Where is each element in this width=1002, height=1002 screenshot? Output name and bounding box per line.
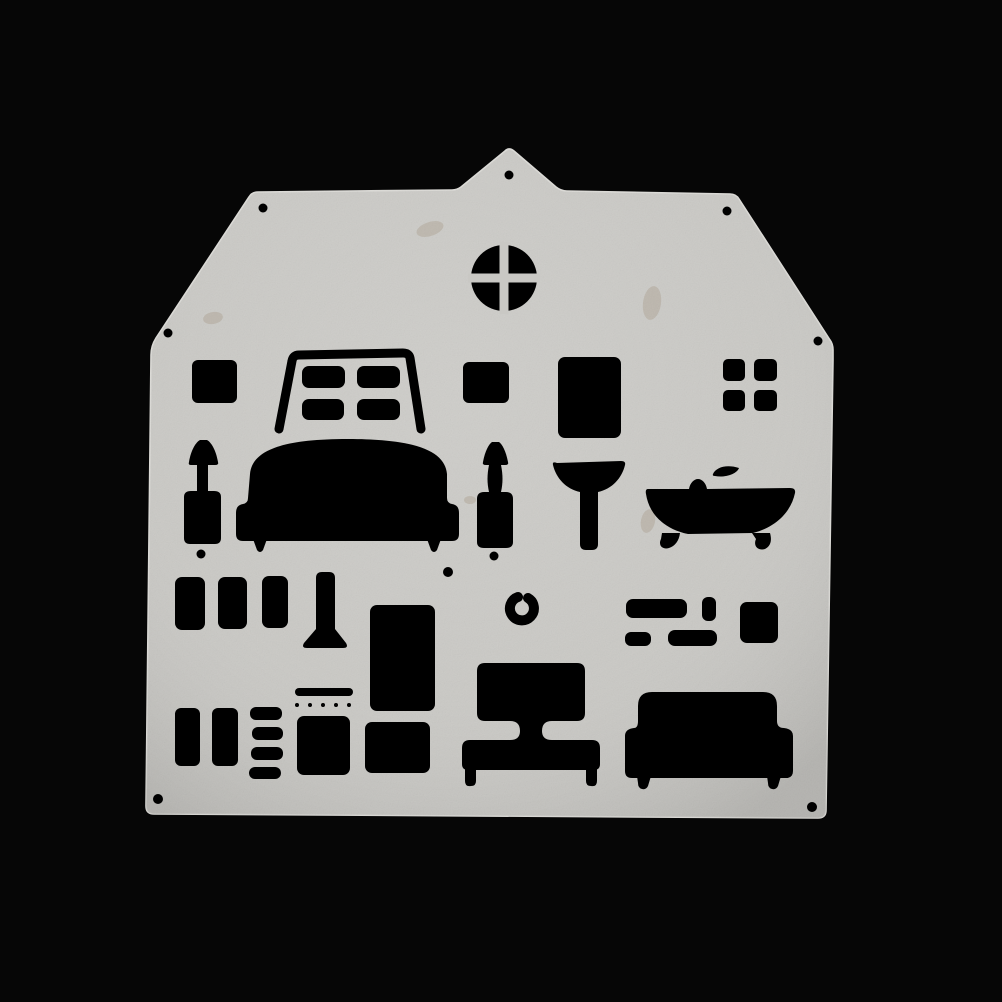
die-photo-canvas	[0, 0, 1002, 1002]
pilot-hole	[505, 171, 514, 180]
vent-slot-cutout	[295, 688, 353, 696]
sofa-bed-cutout	[625, 692, 793, 789]
small-window-cutout	[192, 360, 237, 403]
wardrobe-door-cutout	[370, 605, 435, 711]
dresser-panel-cutout	[297, 716, 350, 775]
cabinet-panel-cutout	[365, 722, 430, 773]
drawer-blank-cutout	[175, 577, 205, 630]
bed-leg-cutout	[586, 768, 597, 786]
pilot-hole	[814, 337, 823, 346]
drawer-blank-cutout	[175, 708, 200, 766]
pilot-hole	[807, 802, 817, 812]
drawer-blank-cutout	[212, 708, 238, 766]
pilot-hole	[723, 207, 732, 216]
attic-cross-vertical-bar	[500, 242, 509, 314]
pilot-hole	[259, 204, 268, 213]
pilot-hole	[164, 329, 173, 338]
small-window-cutout	[463, 362, 509, 403]
door-panel-cutout	[558, 357, 621, 438]
product-photo	[0, 0, 1002, 1002]
pilot-hole	[153, 794, 163, 804]
drawer-blank-cutout	[262, 576, 288, 628]
sofa-cutout	[236, 439, 459, 541]
bed-leg-cutout	[465, 768, 476, 786]
drawer-blank-cutout	[218, 577, 247, 629]
